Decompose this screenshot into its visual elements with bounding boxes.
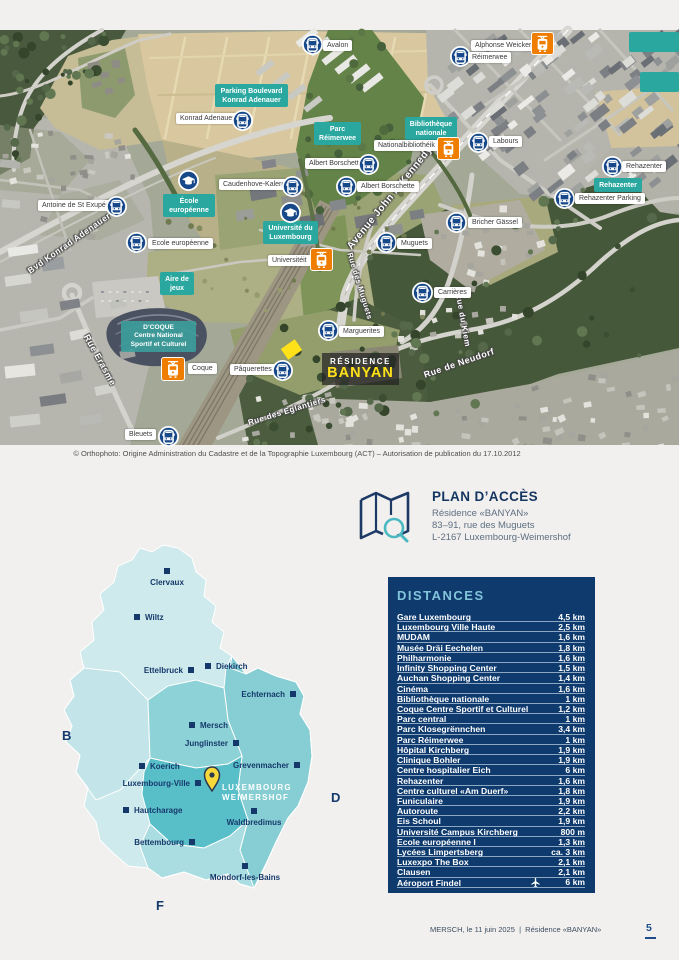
svg-text:Waldbredimus: Waldbredimus <box>227 818 282 827</box>
svg-text:Wiltz: Wiltz <box>145 613 164 622</box>
svg-text:WEIMERSHOF: WEIMERSHOF <box>222 793 289 802</box>
svg-text:LUXEMBOURG: LUXEMBOURG <box>222 783 292 792</box>
svg-text:Grevenmacher: Grevenmacher <box>233 761 289 770</box>
svg-text:D: D <box>331 790 340 805</box>
svg-text:Diekirch: Diekirch <box>216 662 248 671</box>
svg-text:Junglinster: Junglinster <box>185 739 228 748</box>
svg-text:Mondorf-les-Bains: Mondorf-les-Bains <box>210 873 281 882</box>
svg-text:Clervaux: Clervaux <box>150 578 184 587</box>
svg-text:Echternach: Echternach <box>241 690 285 699</box>
svg-text:Bettembourg: Bettembourg <box>134 838 184 847</box>
svg-text:Hautcharage: Hautcharage <box>134 806 183 815</box>
svg-text:Mersch: Mersch <box>200 721 228 730</box>
svg-text:Koerich: Koerich <box>150 762 180 771</box>
svg-text:F: F <box>156 898 164 913</box>
svg-text:B: B <box>62 728 71 743</box>
svg-text:Ettelbruck: Ettelbruck <box>144 666 184 675</box>
svg-text:Luxembourg-Ville: Luxembourg-Ville <box>123 779 191 788</box>
